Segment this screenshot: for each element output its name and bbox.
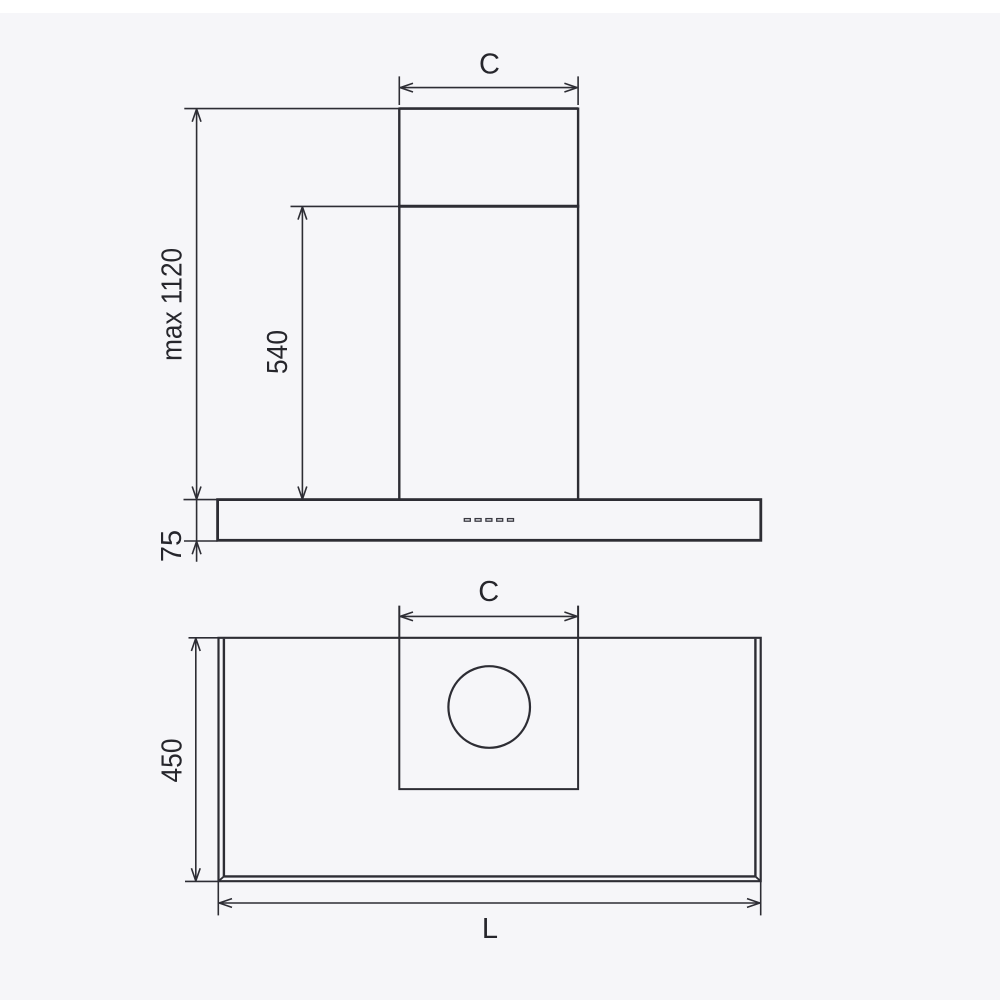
svg-text:C: C <box>478 576 499 608</box>
svg-text:540: 540 <box>262 330 294 374</box>
svg-text:450: 450 <box>157 739 189 783</box>
svg-text:75: 75 <box>156 530 188 562</box>
svg-text:L: L <box>482 913 498 945</box>
svg-text:max 1120: max 1120 <box>157 248 189 361</box>
svg-text:C: C <box>479 48 500 80</box>
